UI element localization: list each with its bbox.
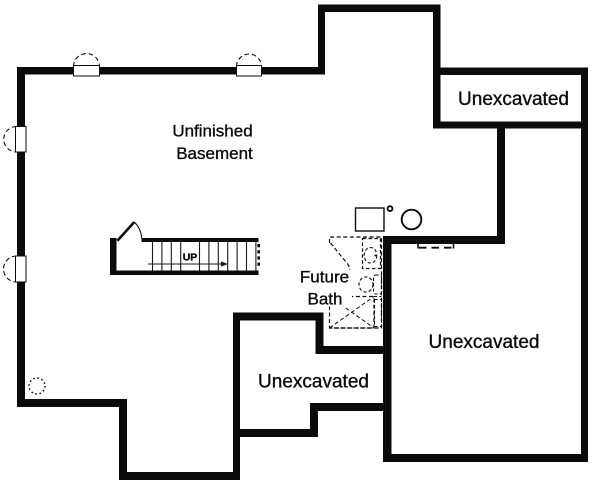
svg-text:Unexcavated: Unexcavated	[258, 372, 369, 393]
svg-text:Unexcavated: Unexcavated	[458, 89, 569, 110]
svg-text:UP: UP	[183, 252, 198, 264]
svg-text:Bath: Bath	[308, 290, 343, 309]
svg-text:Future: Future	[300, 268, 349, 287]
svg-text:Unfinished: Unfinished	[172, 122, 252, 141]
svg-text:Basement: Basement	[176, 144, 253, 163]
svg-text:Unexcavated: Unexcavated	[429, 332, 540, 353]
